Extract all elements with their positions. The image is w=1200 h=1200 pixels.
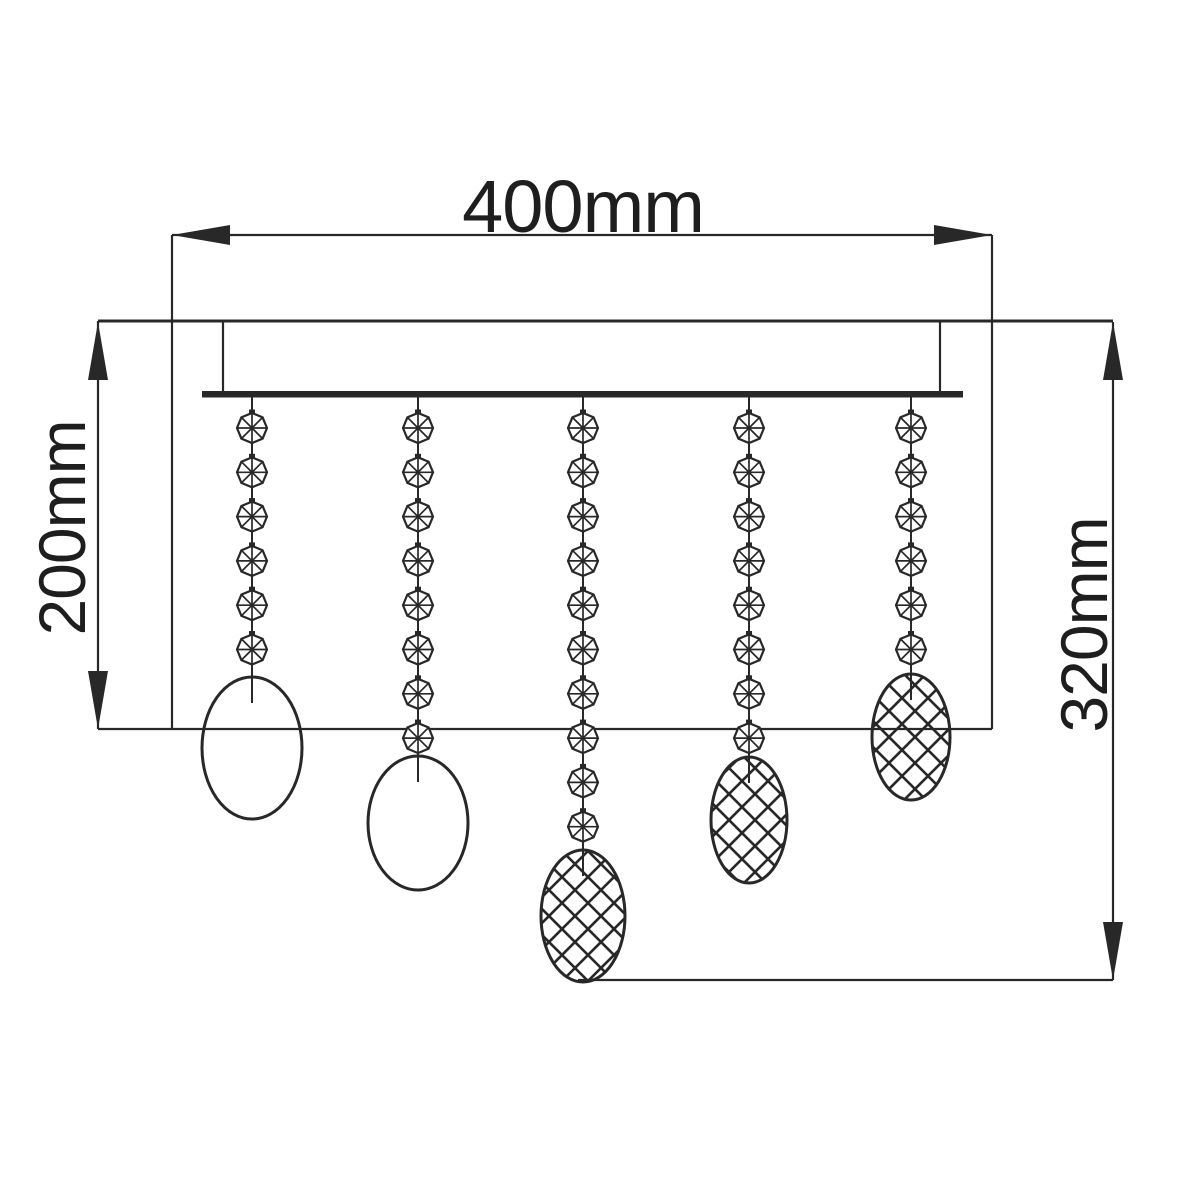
crystal-bead [734, 454, 764, 488]
bead-connector [415, 410, 421, 415]
arrowhead-down [1103, 922, 1123, 980]
hatch-line [631, 635, 835, 839]
bead-connector [415, 720, 421, 725]
bead-connector [746, 454, 752, 459]
bead-connector [580, 675, 586, 680]
hatch-line [571, 808, 787, 1024]
canopy [202, 321, 963, 398]
diagram-page: 400mm 200mm 320mm [0, 0, 1200, 1200]
bead-connector [908, 542, 914, 547]
crystal-bead [568, 631, 598, 665]
bead-connector [580, 587, 586, 592]
hatch-line [810, 719, 1012, 921]
hatch-line [631, 635, 835, 839]
crystal-bead [568, 454, 598, 488]
oval-crosshatch [259, 808, 891, 1024]
hatch-line [813, 635, 1017, 839]
crystal-bead [896, 498, 926, 531]
bead-connector [580, 542, 586, 547]
bead-connector [908, 410, 914, 415]
crystal-bead [237, 587, 267, 621]
arrowhead-right [934, 225, 992, 245]
hatch-line [623, 808, 839, 1024]
hatch-line [524, 719, 726, 921]
bead-connector [580, 410, 586, 415]
bead-connector [580, 498, 586, 503]
hatch-line [602, 719, 804, 921]
bead-connector [908, 587, 914, 592]
arrowhead-up [1103, 322, 1123, 380]
hatch-line [389, 808, 605, 1024]
bead-connector [746, 498, 752, 503]
bead-connector [415, 454, 421, 459]
crystal-bead [403, 542, 433, 576]
hatch-line [311, 808, 527, 1024]
crystal-bead [734, 498, 764, 531]
crystal-bead [734, 410, 764, 444]
crystal-bead [734, 542, 764, 576]
bead-connector [415, 587, 421, 592]
crystal-bead [896, 454, 926, 488]
hatch-line [363, 808, 579, 1024]
hatch-line [649, 808, 865, 1024]
crystal-bead [896, 631, 926, 665]
crystal-bead [896, 410, 926, 444]
crystal-bead [734, 720, 764, 754]
crystal-bead [568, 410, 598, 444]
bead-connector [746, 587, 752, 592]
bead-strand-2 [368, 398, 468, 891]
crystal-bead [237, 542, 267, 576]
crystal-bead [403, 720, 433, 754]
hatch-line [415, 808, 631, 1024]
bead-connector [908, 498, 914, 503]
bead-connector [249, 542, 255, 547]
crystal-bead [237, 631, 267, 665]
hatch-line [836, 719, 1038, 921]
bead-connector [746, 675, 752, 680]
hatch-line [493, 808, 709, 1024]
hatch-line [865, 635, 1069, 839]
hatch-line [363, 808, 579, 1024]
bead-connector [746, 410, 752, 415]
bead-connector [580, 631, 586, 636]
crystal-bead [896, 542, 926, 576]
hatch-line [761, 635, 965, 839]
arrowhead-down [88, 671, 108, 729]
hatch-line [415, 808, 631, 1024]
hatch-line [311, 808, 527, 1024]
hatch-line [836, 719, 1038, 921]
bead-connector [580, 764, 586, 769]
hatch-line [623, 808, 839, 1024]
width-dimension-label: 400mm [462, 165, 704, 248]
hatch-line [649, 808, 865, 1024]
bead-connector [415, 631, 421, 636]
crystal-bead [237, 498, 267, 531]
bead-connector [746, 542, 752, 547]
hatch-line [571, 808, 787, 1024]
diagram-geometry [88, 225, 1199, 1024]
hatch-line [865, 635, 1069, 839]
bead-strand-3 [259, 398, 891, 1025]
hatch-line [259, 808, 475, 1024]
bead-connector [249, 410, 255, 415]
hatch-line [675, 808, 891, 1024]
bead-strand-4 [446, 398, 1038, 922]
crystal-bead [568, 542, 598, 576]
bead-connector [908, 631, 914, 636]
bead-connector [415, 542, 421, 547]
crystal-bead [403, 410, 433, 444]
crystal-bead [403, 631, 433, 665]
hatch-line [467, 808, 683, 1024]
hatch-line [810, 719, 1012, 921]
crystal-bead [568, 498, 598, 531]
bead-connector [249, 498, 255, 503]
height-right-dimension-label: 320mm [1047, 517, 1121, 732]
bead-connector [580, 720, 586, 725]
crystal-bead [896, 587, 926, 621]
bead-connector [746, 720, 752, 725]
hatch-line [285, 808, 501, 1024]
hatch-line [784, 719, 986, 921]
hatch-line [602, 719, 804, 921]
crystal-bead [568, 675, 598, 709]
hatch-line [675, 808, 891, 1024]
arrowhead-up [88, 322, 108, 380]
bead-connector [908, 454, 914, 459]
hatch-line [597, 808, 813, 1024]
bead-connector [249, 587, 255, 592]
hatch-line [605, 635, 809, 839]
hatch-line [597, 808, 813, 1024]
hatch-line [519, 808, 735, 1024]
crystal-bead [403, 587, 433, 621]
bead-connector [415, 675, 421, 680]
crystal-bead [237, 454, 267, 488]
hatch-line [519, 808, 735, 1024]
crystal-bead [237, 410, 267, 444]
bead-connector [249, 454, 255, 459]
hatch-line [285, 808, 501, 1024]
crystal-bead [568, 808, 598, 842]
fixture-dimension-diagram: 400mm 200mm 320mm [0, 0, 1200, 1200]
crystal-bead [734, 587, 764, 621]
hatch-line [761, 635, 965, 839]
hatch-line [524, 719, 726, 921]
hatch-line [787, 635, 991, 839]
hatch-line [839, 635, 1043, 839]
bead-connector [746, 631, 752, 636]
crystal-bead [403, 675, 433, 709]
bead-connector [580, 454, 586, 459]
hatch-line [259, 808, 475, 1024]
canopy-bar [202, 391, 963, 398]
bead-strand-1 [202, 398, 302, 820]
bead-connector [249, 631, 255, 636]
hatch-line [605, 635, 809, 839]
hatch-line [389, 808, 605, 1024]
bead-connector [580, 808, 586, 813]
height-left-dimension-label: 200mm [25, 420, 99, 635]
crystal-bead [403, 498, 433, 531]
crystal-bead [734, 675, 764, 709]
crystal-bead [568, 764, 598, 798]
bead-connector [415, 498, 421, 503]
crystal-bead [568, 587, 598, 621]
arrowhead-left [172, 225, 230, 245]
crystal-bead [568, 720, 598, 754]
hatch-line [784, 719, 986, 921]
crystal-bead [403, 454, 433, 488]
crystal-bead [734, 631, 764, 665]
hatch-line [628, 719, 830, 921]
